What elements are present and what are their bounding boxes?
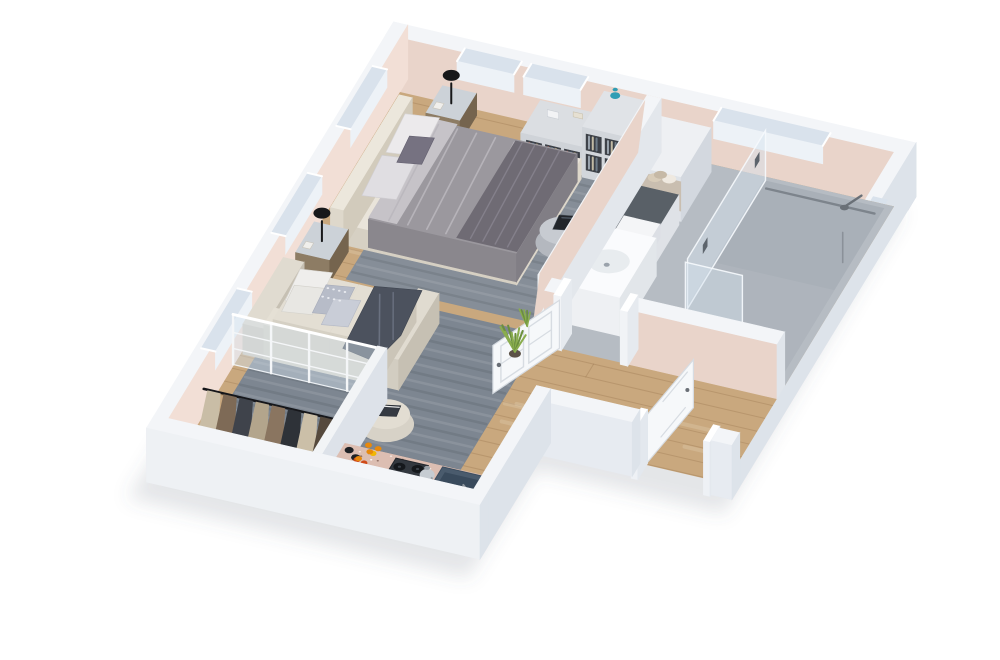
floor-plan-render [0,0,1000,660]
isometric-scene [0,0,1000,660]
